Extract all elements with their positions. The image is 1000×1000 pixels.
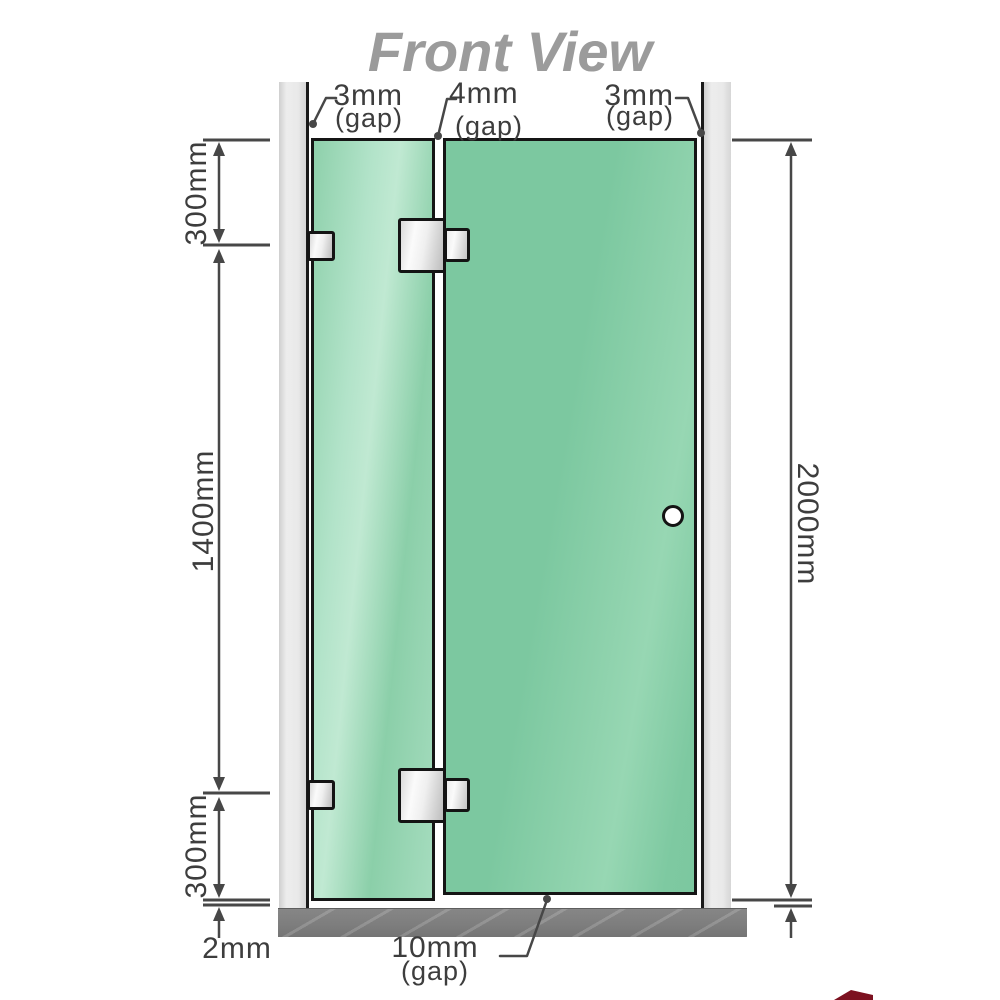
gap-label-middle-value: 4mm <box>449 79 549 109</box>
dimension-2mm-floor-gap: 2mm <box>197 934 277 964</box>
bottom-gap-label-suffix: (gap) <box>365 958 505 985</box>
dimension-300mm-top: 300mm <box>182 123 212 263</box>
logo-corner-mark <box>834 990 873 1000</box>
leader-lines <box>309 98 705 956</box>
dimension-300mm-bottom: 300mm <box>182 776 212 916</box>
gap-label-left-suffix: (gap) <box>303 105 403 132</box>
front-view-diagram: Front View <box>0 0 1000 1000</box>
gap-label-right-suffix: (gap) <box>574 103 674 130</box>
dimension-2000mm-total-height: 2000mm <box>792 424 822 624</box>
dimension-1400mm: 1400mm <box>189 421 219 601</box>
dimension-lines-layer <box>0 0 1000 1000</box>
gap-label-middle-suffix: (gap) <box>455 113 555 140</box>
